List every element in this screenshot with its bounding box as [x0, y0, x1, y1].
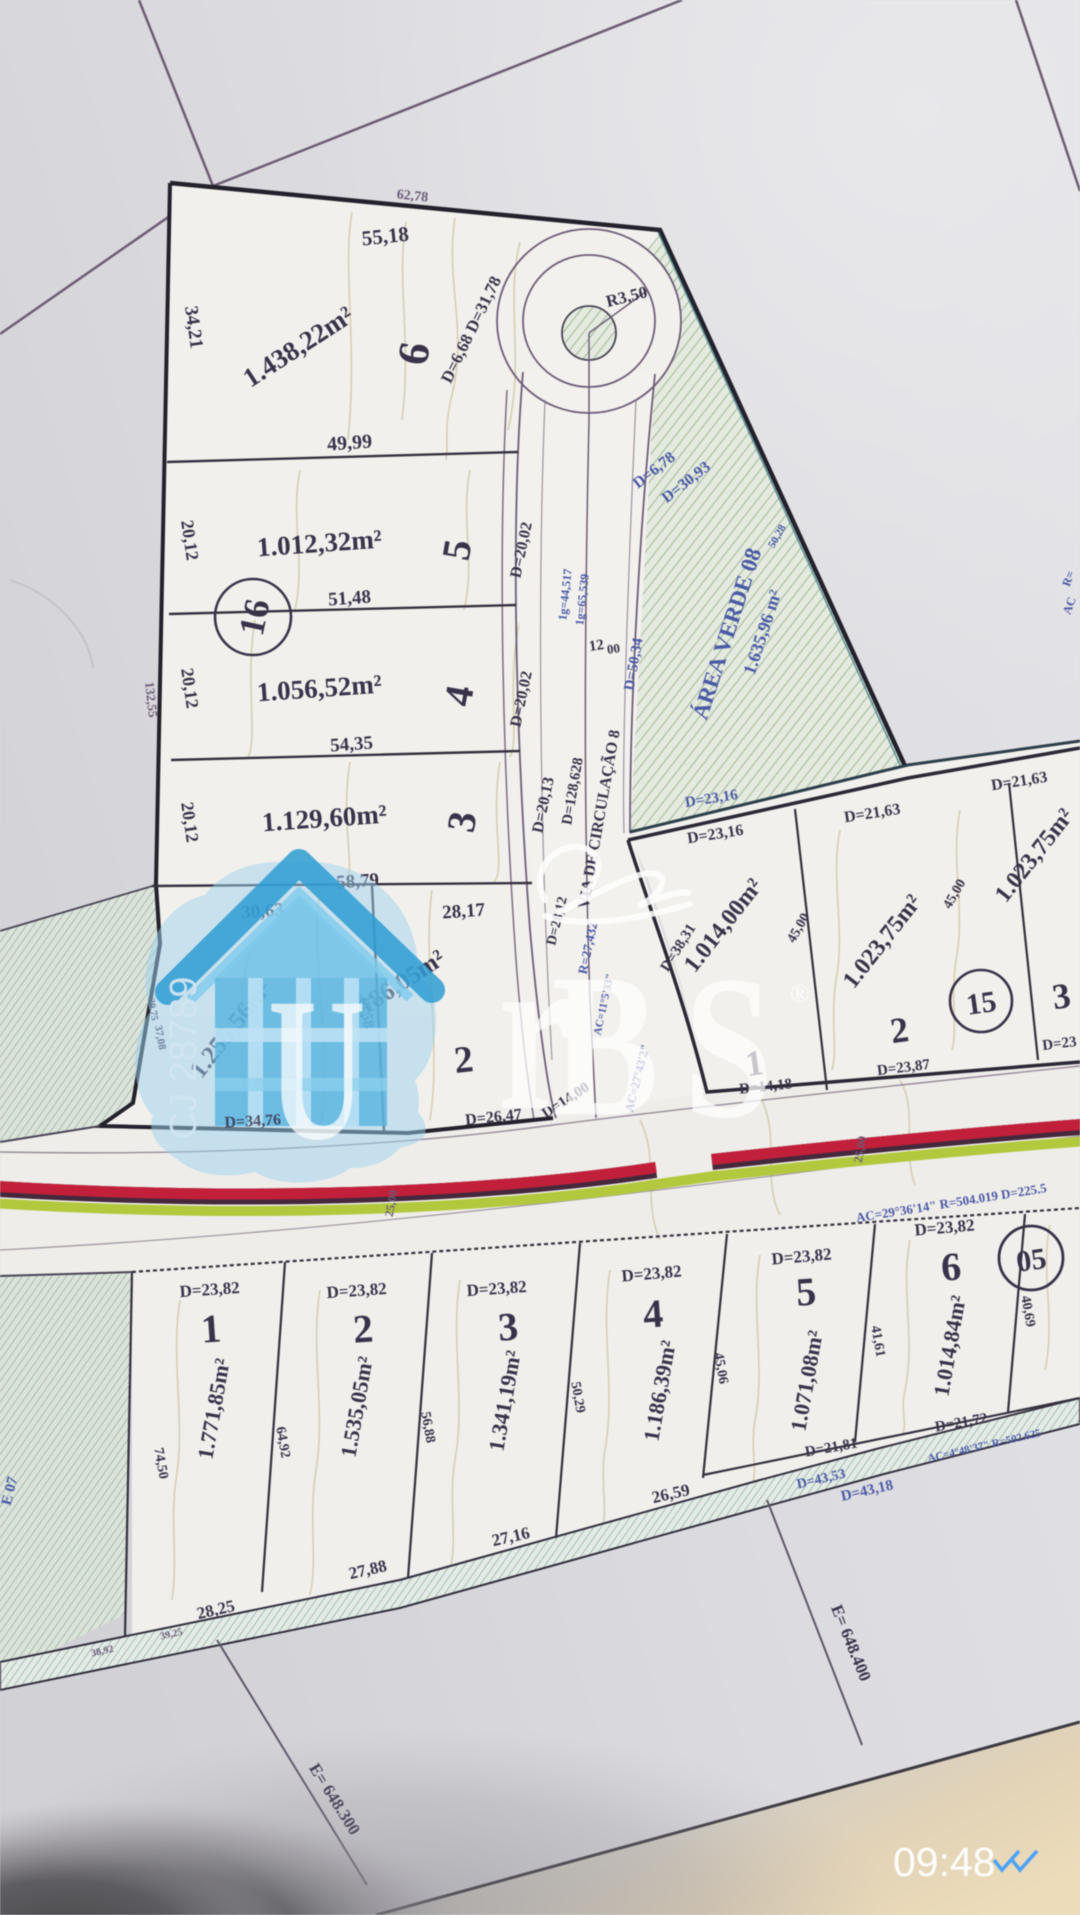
svg-text:00: 00 — [606, 640, 621, 657]
svg-text:4: 4 — [642, 1290, 665, 1336]
svg-text:55,18: 55,18 — [361, 222, 410, 251]
svg-text:3: 3 — [497, 1303, 520, 1349]
svg-text:28,17: 28,17 — [442, 900, 487, 924]
svg-text:S: S — [684, 933, 773, 1160]
svg-text:CJ 28789: CJ 28789 — [163, 977, 205, 1140]
svg-text:12: 12 — [588, 637, 605, 655]
svg-text:51,48: 51,48 — [328, 587, 372, 611]
svg-text:09:48: 09:48 — [893, 1839, 996, 1885]
svg-text:B: B — [552, 931, 659, 1158]
svg-text:6: 6 — [940, 1243, 963, 1289]
svg-text:5: 5 — [795, 1268, 818, 1314]
svg-text:05: 05 — [1014, 1242, 1048, 1279]
svg-text:49,99: 49,99 — [326, 430, 372, 455]
svg-text:54,35: 54,35 — [330, 733, 374, 757]
svg-text:D=34,76: D=34,76 — [224, 1112, 281, 1132]
svg-text:®: ® — [790, 979, 809, 1008]
svg-text:15: 15 — [964, 985, 998, 1022]
svg-text:U: U — [268, 955, 366, 1183]
svg-text:2: 2 — [352, 1305, 375, 1351]
svg-text:1: 1 — [200, 1305, 223, 1351]
